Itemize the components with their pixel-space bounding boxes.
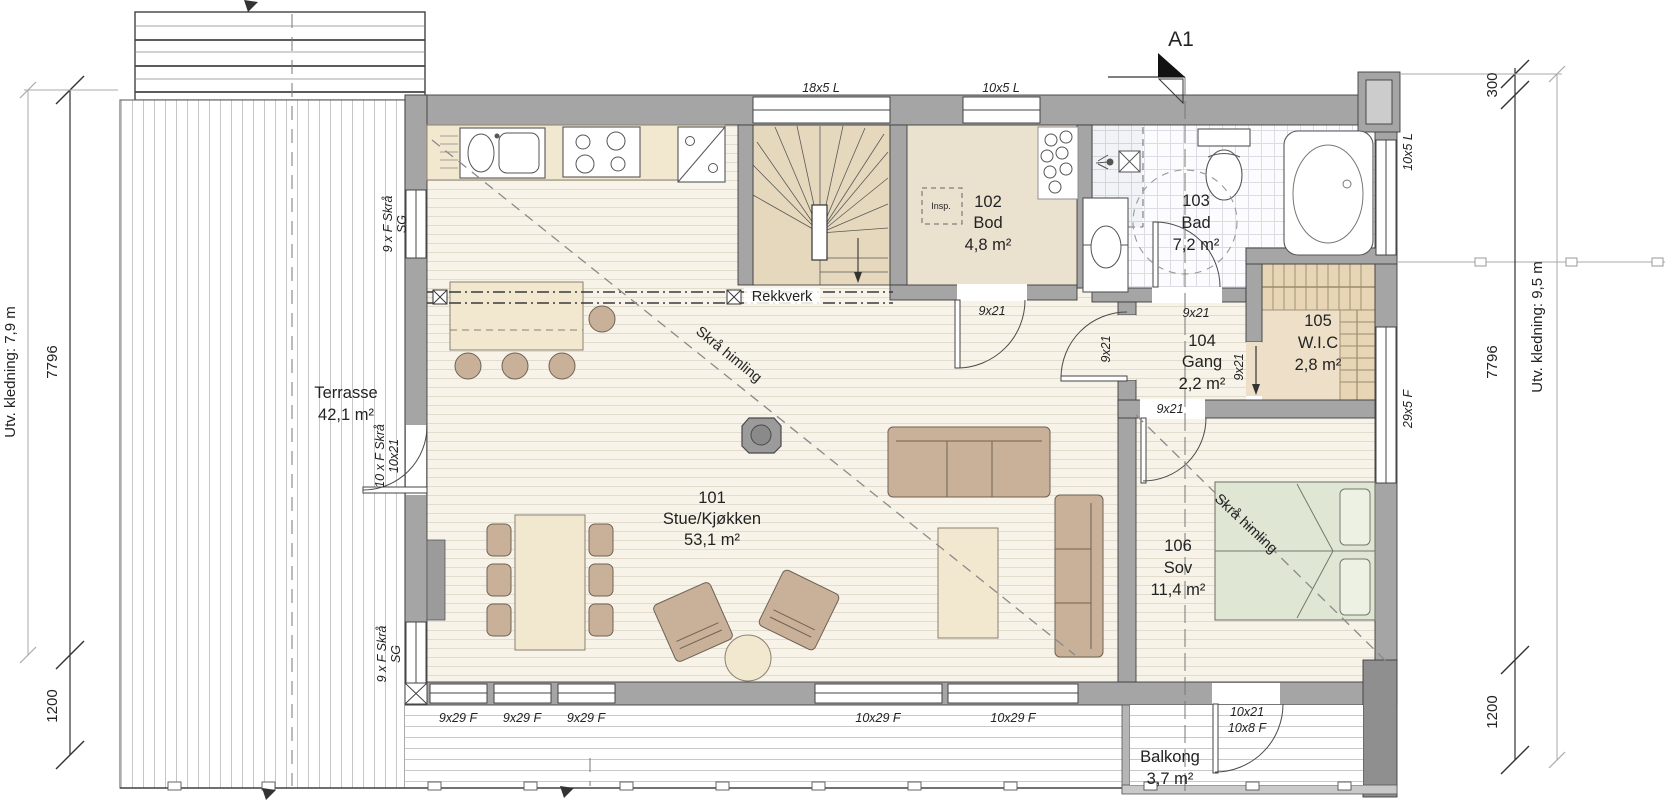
dining-table-set bbox=[487, 515, 613, 650]
dim-cladding-right: Utv. kledning: 9,5 m bbox=[1529, 261, 1546, 392]
door-label: 9x21 bbox=[1156, 402, 1183, 416]
door-label: 10x21 bbox=[1230, 705, 1264, 719]
pergola-roof bbox=[135, 12, 425, 100]
room-name-gang: Gang bbox=[1182, 353, 1222, 371]
room-area-bad: 7,2 m² bbox=[1173, 236, 1220, 254]
dim-7796-left: 7796 bbox=[44, 345, 61, 378]
window-label: 9 x F Skrå bbox=[375, 626, 389, 683]
floor-drain bbox=[1119, 151, 1140, 172]
room-name-sov: Sov bbox=[1164, 559, 1193, 577]
window-top-18x5 bbox=[753, 97, 890, 123]
window-left-bottom bbox=[406, 622, 426, 690]
door-label: 9x21 bbox=[1182, 306, 1209, 320]
bar-stool bbox=[549, 353, 575, 379]
floor-plan-drawing: Insp. Rekkverk Skrå himling Skrå himling bbox=[0, 0, 1670, 800]
window-label: 10x29 F bbox=[990, 711, 1037, 725]
sofa-top bbox=[888, 427, 1050, 497]
bathtub bbox=[1284, 131, 1373, 255]
door-label: 10x21 bbox=[387, 439, 401, 473]
section-label: A1 bbox=[1168, 28, 1194, 51]
bar-stool bbox=[589, 306, 615, 332]
window-top-10x5 bbox=[963, 97, 1040, 123]
railing-label: Rekkverk bbox=[752, 289, 813, 305]
inspection-label: Insp. bbox=[931, 201, 951, 211]
railing-post-marker bbox=[433, 290, 447, 304]
sofa-right bbox=[1055, 495, 1103, 657]
room-id-wic: 105 bbox=[1304, 312, 1332, 330]
wall-top bbox=[405, 95, 1397, 125]
wood-stove bbox=[742, 418, 781, 453]
room-name-terrasse: Terrasse bbox=[314, 384, 377, 402]
room-id-gang: 104 bbox=[1188, 332, 1216, 350]
window-label: SG bbox=[389, 645, 403, 663]
door-label: 10x8 F bbox=[1228, 721, 1268, 735]
pillow bbox=[1340, 559, 1370, 615]
door-label: 10 x F Skrå bbox=[373, 424, 387, 488]
window-label: SG bbox=[395, 215, 409, 233]
pillow bbox=[1340, 489, 1370, 545]
bedroom-bed bbox=[1215, 482, 1375, 620]
staircase bbox=[753, 125, 890, 285]
window-label: 9x29 F bbox=[503, 711, 543, 725]
window-label: 10x5 L bbox=[1401, 133, 1415, 171]
window-label: 9 x F Skrå bbox=[381, 196, 395, 253]
room-area-stue: 53,1 m² bbox=[684, 531, 740, 549]
door-label: 9x21 bbox=[978, 304, 1005, 318]
kitchen-stove bbox=[563, 127, 640, 177]
vanity-sink bbox=[1083, 198, 1128, 292]
window-label: 10x5 L bbox=[982, 81, 1020, 95]
railing-post-marker bbox=[727, 290, 741, 304]
dim-300-right: 300 bbox=[1484, 72, 1501, 97]
room-name-bad: Bad bbox=[1181, 214, 1210, 232]
window-label: 9x29 F bbox=[567, 711, 607, 725]
room-area-bod: 4,8 m² bbox=[965, 236, 1012, 254]
kitchen-fridge bbox=[678, 127, 725, 182]
window-label: 10x29 F bbox=[855, 711, 902, 725]
door-label: 9x21 bbox=[1099, 335, 1113, 362]
room-area-terrasse: 42,1 m² bbox=[318, 406, 374, 424]
sliding-door-panel bbox=[427, 540, 445, 620]
window-label: 18x5 L bbox=[802, 81, 840, 95]
corner-marker bbox=[405, 683, 427, 704]
room-name-wic: W.I.C bbox=[1298, 334, 1338, 352]
room-area-gang: 2,2 m² bbox=[1179, 375, 1226, 393]
room-name-bod: Bod bbox=[973, 214, 1002, 232]
dim-7796-right: 7796 bbox=[1484, 345, 1501, 378]
window-label: 9x29 F bbox=[439, 711, 479, 725]
window-left-top bbox=[406, 190, 426, 258]
bar-stool bbox=[502, 353, 528, 379]
room-id-sov: 106 bbox=[1164, 537, 1192, 555]
window-label: 29x5 F bbox=[1401, 389, 1415, 430]
window-right-sov bbox=[1376, 327, 1396, 483]
dim-1200-left: 1200 bbox=[44, 689, 61, 722]
window-right-bad bbox=[1376, 140, 1396, 255]
door-wic bbox=[1246, 342, 1262, 396]
wall-balkong-right bbox=[1363, 660, 1397, 797]
room-area-sov: 11,4 m² bbox=[1151, 581, 1206, 599]
dim-cladding-left: Utv. kledning: 7,9 m bbox=[2, 306, 19, 437]
side-table bbox=[725, 635, 771, 681]
room-name-stue: Stue/Kjøkken bbox=[663, 510, 761, 528]
room-area-wic: 2,8 m² bbox=[1295, 356, 1342, 374]
dim-1200-right: 1200 bbox=[1484, 695, 1501, 728]
bar-stool bbox=[455, 353, 481, 379]
room-id-stue: 101 bbox=[698, 489, 726, 507]
room-id-bod: 102 bbox=[974, 193, 1002, 211]
floor-plan-canvas: Insp. Rekkverk Skrå himling Skrå himling bbox=[0, 0, 1670, 800]
room-name-balkong: Balkong bbox=[1140, 748, 1200, 766]
room-id-bad: 103 bbox=[1182, 192, 1210, 210]
wall-left bbox=[405, 95, 427, 705]
room-area-balkong: 3,7 m² bbox=[1147, 770, 1194, 788]
door-label: 9x21 bbox=[1232, 353, 1246, 380]
coffee-table bbox=[938, 528, 998, 638]
